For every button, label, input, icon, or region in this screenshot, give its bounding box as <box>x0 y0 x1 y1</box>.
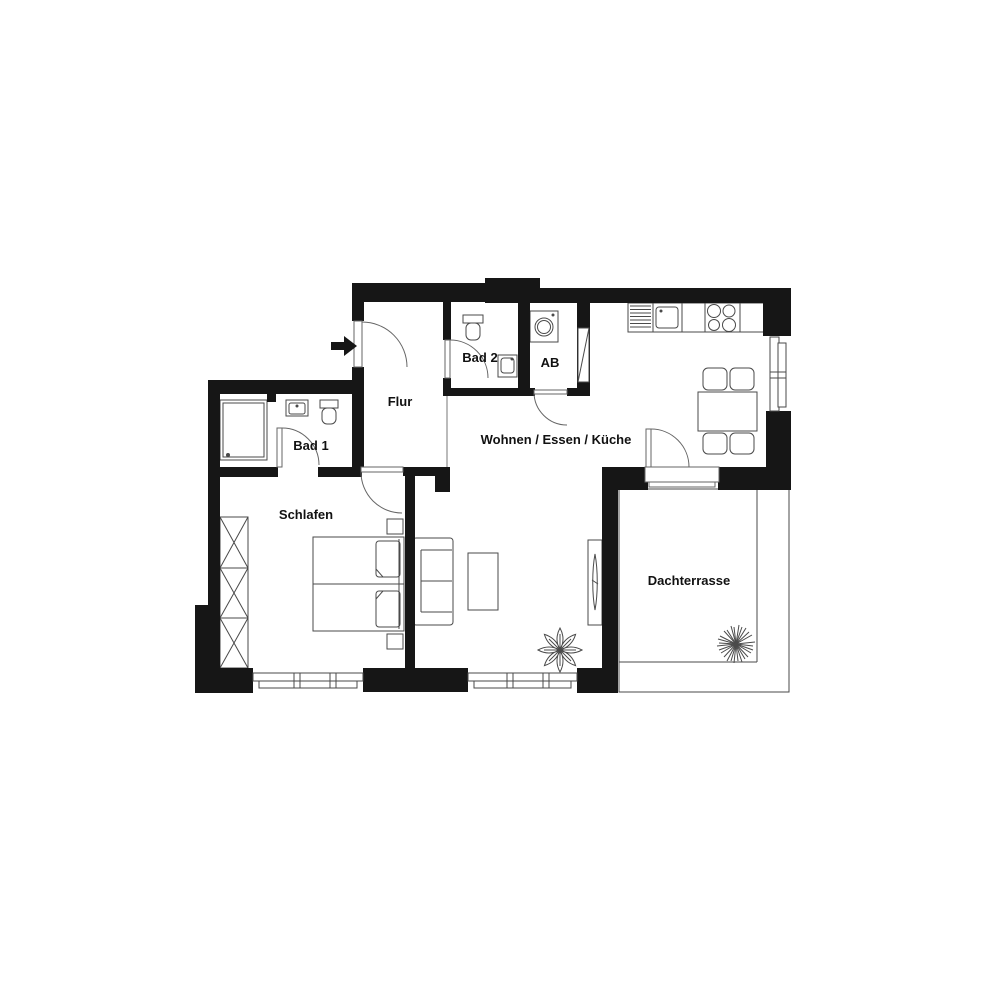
sofa <box>413 538 453 625</box>
room-label-wohnen: Wohnen / Essen / Küche <box>481 432 632 447</box>
dining-chair <box>703 433 727 454</box>
shower-icon <box>220 400 267 460</box>
bed <box>313 537 404 631</box>
tv-board <box>588 540 602 625</box>
window <box>253 673 363 688</box>
sink-icon <box>498 355 517 377</box>
dining-table <box>698 392 757 431</box>
room-label-bad2: Bad 2 <box>462 350 497 365</box>
room-label-schlafen: Schlafen <box>279 507 333 522</box>
plant-icon <box>717 625 755 663</box>
wardrobe <box>220 517 248 668</box>
entrance-door-swing <box>354 321 407 367</box>
room-label-ab: AB <box>541 355 560 370</box>
dining-chair <box>730 368 754 390</box>
toilet-icon <box>320 400 338 424</box>
washing-machine-icon <box>530 311 558 342</box>
room-label-flur: Flur <box>388 394 413 409</box>
terrace-outline <box>619 489 789 692</box>
floor-plan-page: Flur Bad 2 AB Bad 1 Wohnen / Essen / Küc… <box>0 0 1000 1000</box>
dining-chair <box>730 433 754 454</box>
toilet-icon <box>463 315 483 340</box>
nightstand <box>387 634 403 649</box>
drainer-icon <box>630 306 651 327</box>
room-label-dachterrasse: Dachterrasse <box>648 573 730 588</box>
plant-icon <box>538 628 582 672</box>
shaft <box>578 328 589 382</box>
window <box>770 337 786 411</box>
dining-chair <box>703 368 727 390</box>
room-label-bad1: Bad 1 <box>293 438 328 453</box>
nightstand <box>387 519 403 534</box>
entrance-arrow-icon <box>331 336 357 356</box>
door-swing <box>534 390 567 425</box>
sink-icon <box>286 400 308 416</box>
kitchen-counter <box>628 303 766 332</box>
window <box>468 673 577 688</box>
coffee-table <box>468 553 498 610</box>
door-swing <box>361 467 403 513</box>
floor-plan: Flur Bad 2 AB Bad 1 Wohnen / Essen / Küc… <box>0 0 1000 1000</box>
